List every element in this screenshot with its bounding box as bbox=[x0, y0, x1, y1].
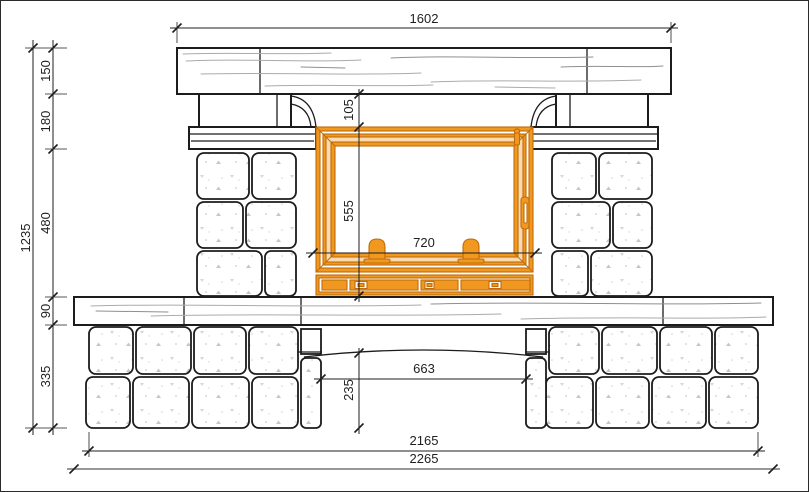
left-jamb-stone bbox=[301, 358, 321, 428]
dim-label-150: 150 bbox=[38, 60, 53, 82]
stone-block bbox=[715, 327, 758, 374]
stone-block bbox=[549, 327, 599, 374]
mantel-beam-slab bbox=[177, 48, 671, 94]
dim-total-height: 1235 bbox=[18, 40, 38, 435]
dim-opening-height: 235 bbox=[341, 348, 364, 434]
control-panel bbox=[322, 280, 347, 290]
fireplace-elevation-drawing: 1602 1235 150 180 480 90 335 105 555 bbox=[1, 1, 809, 493]
insert-control-strip bbox=[316, 275, 533, 295]
stone-block bbox=[86, 377, 130, 428]
right-column-stones bbox=[552, 153, 652, 296]
stone-block bbox=[591, 251, 652, 296]
dim-label-2265: 2265 bbox=[410, 451, 439, 466]
dim-label-1602: 1602 bbox=[410, 11, 439, 26]
right-jamb-stone bbox=[526, 358, 546, 428]
door-handle bbox=[521, 197, 529, 229]
stone-block bbox=[652, 377, 706, 428]
hearth-bench bbox=[74, 297, 773, 325]
dim-label-663: 663 bbox=[413, 361, 435, 376]
stone-block bbox=[197, 202, 243, 248]
stone-block bbox=[613, 202, 652, 248]
stone-block bbox=[546, 377, 593, 428]
dim-label-720: 720 bbox=[413, 235, 435, 250]
stone-block bbox=[197, 251, 262, 296]
dim-label-335: 335 bbox=[38, 366, 53, 388]
stone-block bbox=[136, 327, 191, 374]
stone-block bbox=[194, 327, 246, 374]
stone-block bbox=[596, 377, 649, 428]
dim-bench-width: 2265 bbox=[67, 451, 780, 474]
bench-slab bbox=[74, 297, 773, 325]
right-cove-curve-inner bbox=[536, 104, 556, 127]
stone-block bbox=[246, 202, 296, 248]
mantel-beam bbox=[177, 48, 671, 94]
stone-block bbox=[552, 202, 610, 248]
right-cove-curve bbox=[531, 96, 556, 127]
stone-block bbox=[265, 251, 296, 296]
stone-block bbox=[602, 327, 657, 374]
right-shelf bbox=[531, 127, 658, 149]
stone-block bbox=[89, 327, 133, 374]
dim-label-105: 105 bbox=[341, 99, 356, 121]
stone-block bbox=[709, 377, 758, 428]
arch-curve bbox=[304, 350, 543, 357]
dim-label-555: 555 bbox=[341, 200, 356, 222]
dim-label-2165: 2165 bbox=[410, 433, 439, 448]
dim-label-235: 235 bbox=[341, 379, 356, 401]
left-springer-block bbox=[301, 329, 321, 354]
base-stones-left bbox=[86, 327, 298, 428]
stone-block bbox=[192, 377, 249, 428]
left-corbel bbox=[189, 94, 316, 149]
stone-block bbox=[252, 377, 298, 428]
dim-label-90: 90 bbox=[38, 304, 53, 318]
stone-block bbox=[660, 327, 712, 374]
stone-block bbox=[133, 377, 189, 428]
technical-drawing-canvas: 1602 1235 150 180 480 90 335 105 555 bbox=[0, 0, 809, 492]
base-stones-right bbox=[546, 327, 758, 428]
left-column-stones bbox=[197, 153, 296, 296]
dim-label-180: 180 bbox=[38, 111, 53, 133]
vent-slot-inner bbox=[427, 284, 432, 287]
stone-block bbox=[552, 251, 588, 296]
left-cove-curve bbox=[291, 96, 316, 127]
stone-block bbox=[252, 153, 296, 199]
dim-label-1235: 1235 bbox=[18, 224, 33, 253]
stone-block bbox=[197, 153, 249, 199]
right-springer-block bbox=[526, 329, 546, 354]
right-corbel bbox=[531, 94, 658, 149]
vent-slot-inner bbox=[492, 284, 498, 287]
dim-label-480: 480 bbox=[38, 212, 53, 234]
stone-block bbox=[599, 153, 652, 199]
left-shelf bbox=[189, 127, 316, 149]
dim-mantel-width: 1602 bbox=[170, 11, 678, 43]
latch-icon bbox=[514, 129, 519, 145]
left-cove-curve-inner bbox=[291, 104, 311, 127]
stone-block bbox=[249, 327, 298, 374]
stone-block bbox=[552, 153, 596, 199]
